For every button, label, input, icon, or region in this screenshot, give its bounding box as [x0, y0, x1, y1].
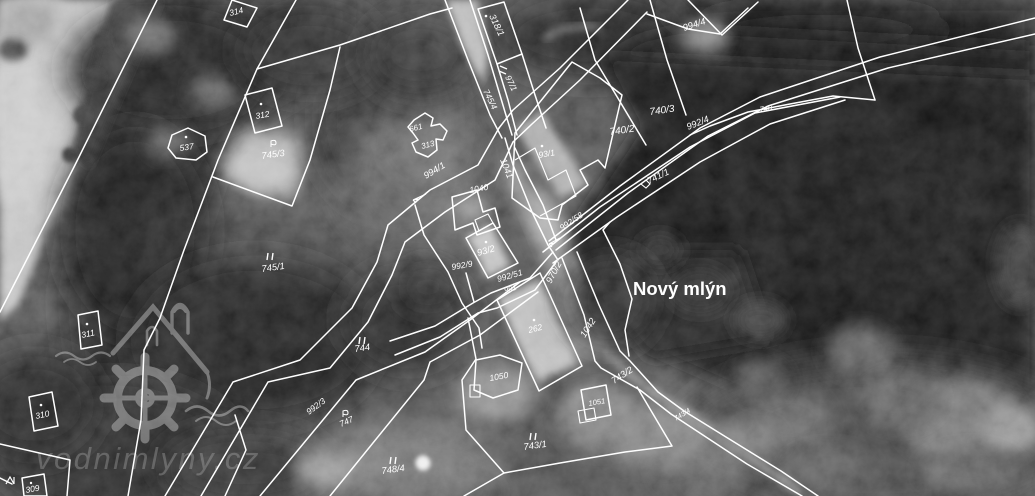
svg-text:Nový mlýn: Nový mlýn — [633, 278, 727, 299]
svg-text:744: 744 — [354, 342, 371, 354]
svg-text:740: 740 — [759, 103, 773, 114]
svg-text:537: 537 — [179, 141, 195, 153]
